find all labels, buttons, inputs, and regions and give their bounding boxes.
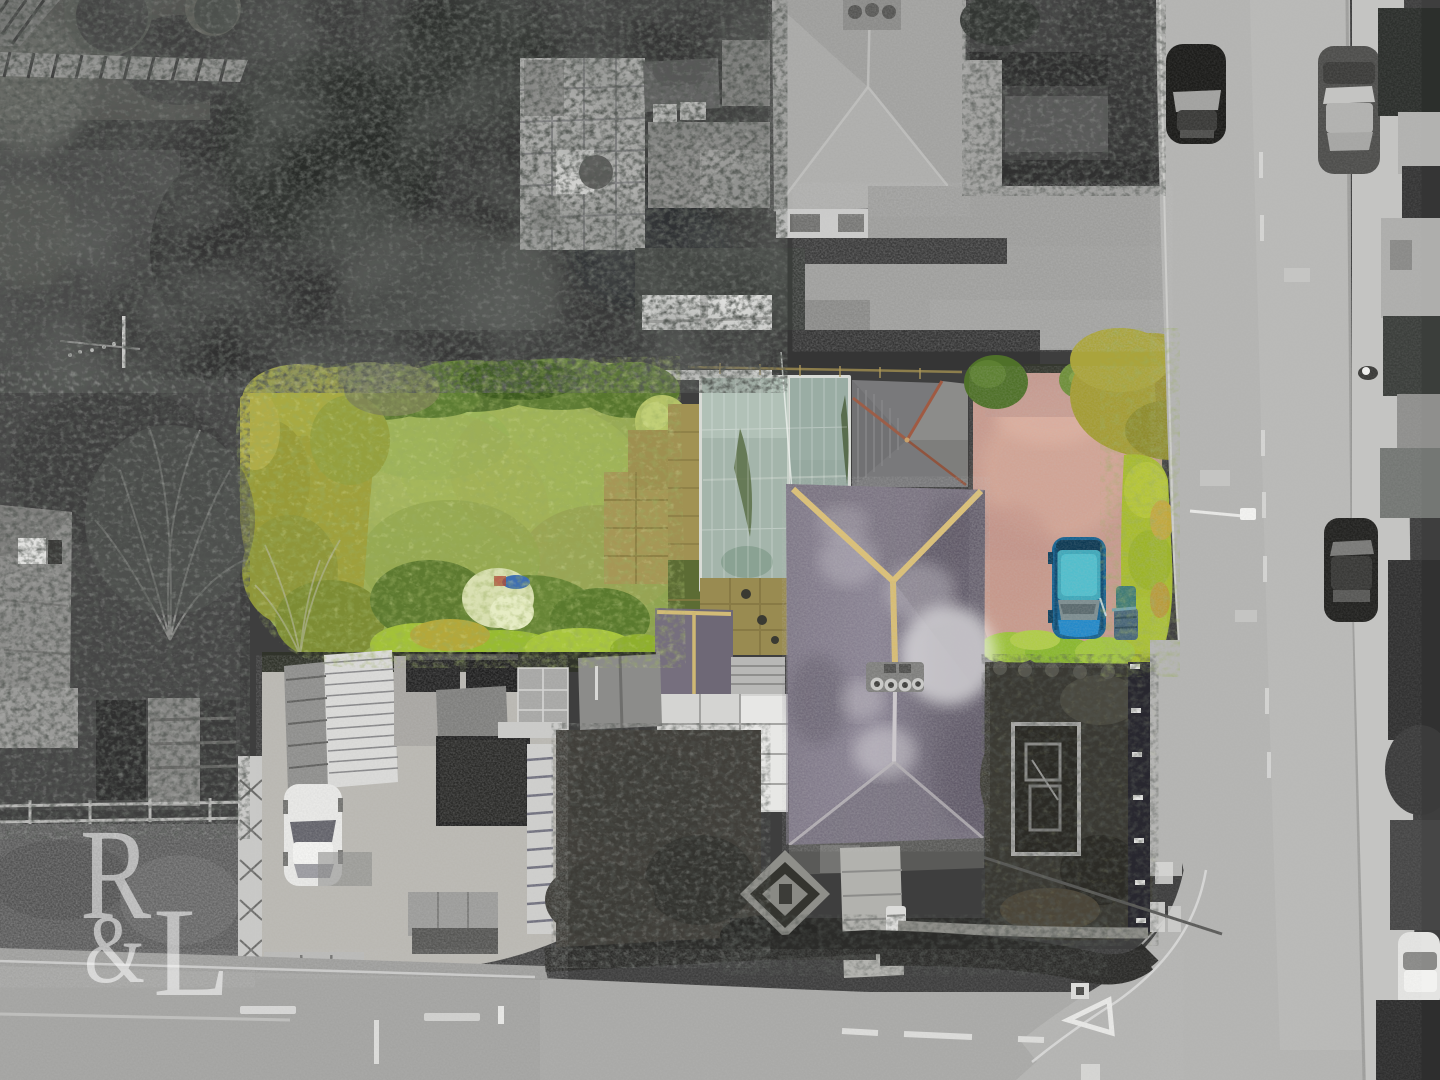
svg-text:L: L — [153, 883, 231, 1023]
svg-text:&: & — [84, 896, 145, 1004]
